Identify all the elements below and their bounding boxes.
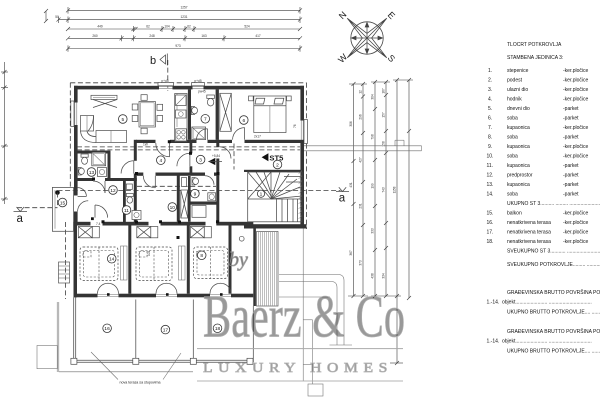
svg-text:3: 3 (199, 157, 202, 163)
svg-text:2x17: 2x17 (254, 135, 261, 139)
svg-text:hodnik: hodnik (507, 97, 522, 103)
svg-text:a: a (339, 193, 346, 205)
svg-text:2.: 2. (488, 78, 492, 84)
svg-text:nenatkrivena terasa: nenatkrivena terasa (507, 220, 551, 226)
svg-text:4: 4 (159, 158, 162, 164)
svg-text:kupaonica: kupaonica (507, 182, 530, 188)
svg-text:4.: 4. (488, 97, 492, 103)
svg-text:soba: soba (507, 116, 518, 122)
svg-text:podest: podest (507, 78, 523, 84)
svg-text:12: 12 (359, 90, 363, 94)
svg-text:50: 50 (55, 15, 59, 19)
svg-text:-ker.pločice: -ker.pločice (563, 239, 589, 245)
svg-text:ulazni dio: ulazni dio (507, 87, 528, 93)
svg-text:p+d5: p+d5 (194, 79, 201, 83)
svg-text:15: 15 (60, 200, 66, 206)
svg-text:260: 260 (92, 34, 98, 38)
svg-text:kupaonica: kupaonica (507, 144, 530, 150)
svg-text:-ker.pločice: -ker.pločice (563, 144, 589, 150)
svg-text:14: 14 (109, 257, 115, 263)
svg-text:Baerz & Co: Baerz & Co (203, 284, 405, 350)
svg-text:304: 304 (371, 94, 375, 100)
svg-text:a: a (17, 213, 24, 225)
svg-text:76: 76 (293, 124, 297, 128)
svg-text:199: 199 (371, 183, 375, 189)
svg-text:STAMBENA JEDINICA 3:: STAMBENA JEDINICA 3: (507, 55, 563, 61)
svg-text:12: 12 (110, 188, 116, 194)
svg-text:1.-14.: 1.-14. (487, 339, 500, 345)
svg-text:nova terasa sa stupovima: nova terasa sa stupovima (120, 380, 161, 384)
svg-text:157: 157 (382, 112, 386, 118)
svg-text:167: 167 (382, 88, 386, 94)
svg-text:1.: 1. (488, 68, 492, 74)
svg-text:248: 248 (149, 34, 155, 38)
svg-text:333: 333 (371, 228, 375, 234)
svg-text:predprostor: predprostor (507, 173, 533, 179)
svg-text:17: 17 (163, 327, 169, 333)
svg-text:231: 231 (359, 203, 363, 209)
svg-text:438: 438 (371, 273, 375, 279)
svg-text:5: 5 (121, 117, 124, 123)
svg-text:367: 367 (349, 250, 353, 256)
svg-text:-parket: -parket (563, 135, 579, 141)
svg-text:-parket: -parket (563, 182, 579, 188)
svg-text:-ker.pločice: -ker.pločice (563, 125, 589, 131)
svg-text:16: 16 (104, 326, 110, 332)
svg-text:306: 306 (349, 121, 353, 127)
svg-text:13.: 13. (487, 182, 494, 188)
svg-text:12.: 12. (487, 173, 494, 179)
svg-text:373: 373 (359, 260, 363, 266)
svg-text:16.: 16. (487, 220, 494, 226)
svg-text:by: by (229, 249, 248, 271)
svg-text:-parket: -parket (563, 163, 579, 169)
svg-text:431: 431 (349, 182, 353, 188)
svg-text:SVEUKUPNO POTKROVLJE.........: SVEUKUPNO POTKROVLJE......... ..........… (507, 262, 600, 268)
svg-text:6.: 6. (488, 116, 492, 122)
svg-text:-ker.pločice: -ker.pločice (563, 97, 589, 103)
svg-text:973: 973 (175, 44, 181, 48)
svg-text:17.: 17. (487, 230, 494, 236)
svg-text:427: 427 (359, 157, 363, 163)
svg-text:449: 449 (97, 25, 103, 29)
svg-text:-ker.pločice: -ker.pločice (563, 211, 589, 217)
svg-text:10.: 10. (487, 154, 494, 160)
svg-text:104: 104 (164, 25, 170, 29)
svg-text:soba: soba (507, 192, 518, 198)
svg-text:11.: 11. (487, 163, 494, 169)
svg-text:GRAĐEVINSKA BRUTTO POVRŠINA PO: GRAĐEVINSKA BRUTTO POVRŠINA POTKROVLJA (507, 289, 600, 296)
svg-text:-ker.pločice: -ker.pločice (563, 154, 589, 160)
svg-text:-ker.pločice: -ker.pločice (563, 78, 589, 84)
svg-text:1158: 1158 (393, 186, 397, 193)
svg-text:-parket: -parket (563, 116, 579, 122)
svg-text:7: 7 (204, 117, 207, 123)
svg-text:nenatkrivena terasa: nenatkrivena terasa (507, 239, 551, 245)
svg-text:62: 62 (187, 25, 191, 29)
svg-text:9.: 9. (488, 144, 492, 150)
svg-text:-ker.pločice: -ker.pločice (563, 68, 589, 74)
svg-text:objekt.......................: objekt....................... ..........… (502, 300, 592, 306)
svg-text:1W: 1W (143, 143, 148, 147)
svg-text:7.: 7. (488, 125, 492, 131)
svg-text:kupaonica: kupaonica (507, 163, 530, 169)
svg-text:15.: 15. (487, 211, 494, 217)
svg-text:p+d5: p+d5 (161, 79, 168, 83)
svg-text:-ker.pločice: -ker.pločice (563, 87, 589, 93)
svg-text:524: 524 (244, 25, 250, 29)
svg-text:-parket: -parket (563, 173, 579, 179)
svg-text:9: 9 (194, 191, 197, 197)
svg-text:-parket: -parket (563, 192, 579, 198)
svg-text:8: 8 (200, 253, 203, 259)
svg-text:+5,84: +5,84 (212, 154, 220, 158)
svg-text:stepenice: stepenice (507, 68, 529, 74)
svg-text:5.: 5. (488, 106, 492, 112)
svg-text:pw45: pw45 (198, 90, 206, 94)
svg-text:11: 11 (124, 208, 129, 214)
svg-text:62: 62 (146, 25, 150, 29)
svg-text:13: 13 (89, 170, 95, 176)
svg-text:7.4: 7.4 (96, 222, 101, 226)
svg-text:296: 296 (359, 114, 363, 120)
svg-text:1.-14.: 1.-14. (487, 300, 500, 306)
svg-text:GRAĐEVINSKA BRUTTO POVRŠINA PO: GRAĐEVINSKA BRUTTO POVRŠINA POTKROVLJA (507, 328, 600, 335)
svg-text:soba: soba (507, 135, 518, 141)
svg-text:417: 417 (255, 34, 261, 38)
svg-text:163: 163 (201, 34, 207, 38)
svg-text:LUXURY HOMES: LUXURY HOMES (203, 361, 393, 376)
svg-text:UKUPNO BRUTTO POTKROVLJE.... .: UKUPNO BRUTTO POTKROVLJE.... ...........… (507, 310, 600, 316)
svg-text:-ker.pločice: -ker.pločice (563, 220, 589, 226)
svg-text:balkon: balkon (507, 211, 522, 217)
svg-text:objekt.......................: objekt....................... ..........… (502, 339, 592, 345)
svg-text:dnevni dio: dnevni dio (507, 106, 530, 112)
svg-text:10: 10 (170, 205, 176, 211)
svg-text:UKUPNO BRUTTO POTKROVLJE.... .: UKUPNO BRUTTO POTKROVLJE.... ...........… (507, 349, 600, 355)
svg-text:14.: 14. (487, 192, 494, 198)
svg-text:soba: soba (507, 154, 518, 160)
svg-text:3.: 3. (488, 87, 492, 93)
svg-text:18.: 18. (487, 239, 494, 245)
svg-text:8.: 8. (488, 135, 492, 141)
svg-text:UKUPNO ST 3.......... ........: UKUPNO ST 3.......... ......... ........… (507, 201, 600, 207)
svg-text:-ker.pločice: -ker.pločice (563, 230, 589, 236)
svg-text:1257: 1257 (180, 6, 187, 10)
svg-text:334: 334 (382, 273, 386, 279)
svg-text:798: 798 (371, 134, 375, 140)
svg-text:SVEUKUPNO ST 3........... ....: SVEUKUPNO ST 3........... ..............… (507, 249, 600, 255)
svg-text:TLOCRT POTKROVLJA: TLOCRT POTKROVLJA (507, 42, 562, 48)
svg-text:1231: 1231 (180, 15, 187, 19)
svg-text:-parket: -parket (563, 106, 579, 112)
svg-text:6: 6 (242, 118, 245, 124)
svg-text:2: 2 (276, 162, 279, 168)
svg-text:743: 743 (382, 187, 386, 193)
svg-text:b: b (150, 55, 156, 67)
svg-text:1: 1 (260, 191, 263, 197)
svg-text:101: 101 (147, 250, 151, 256)
svg-text:nenatkrivena terasa: nenatkrivena terasa (507, 230, 551, 236)
svg-text:kupaonica: kupaonica (507, 125, 530, 131)
